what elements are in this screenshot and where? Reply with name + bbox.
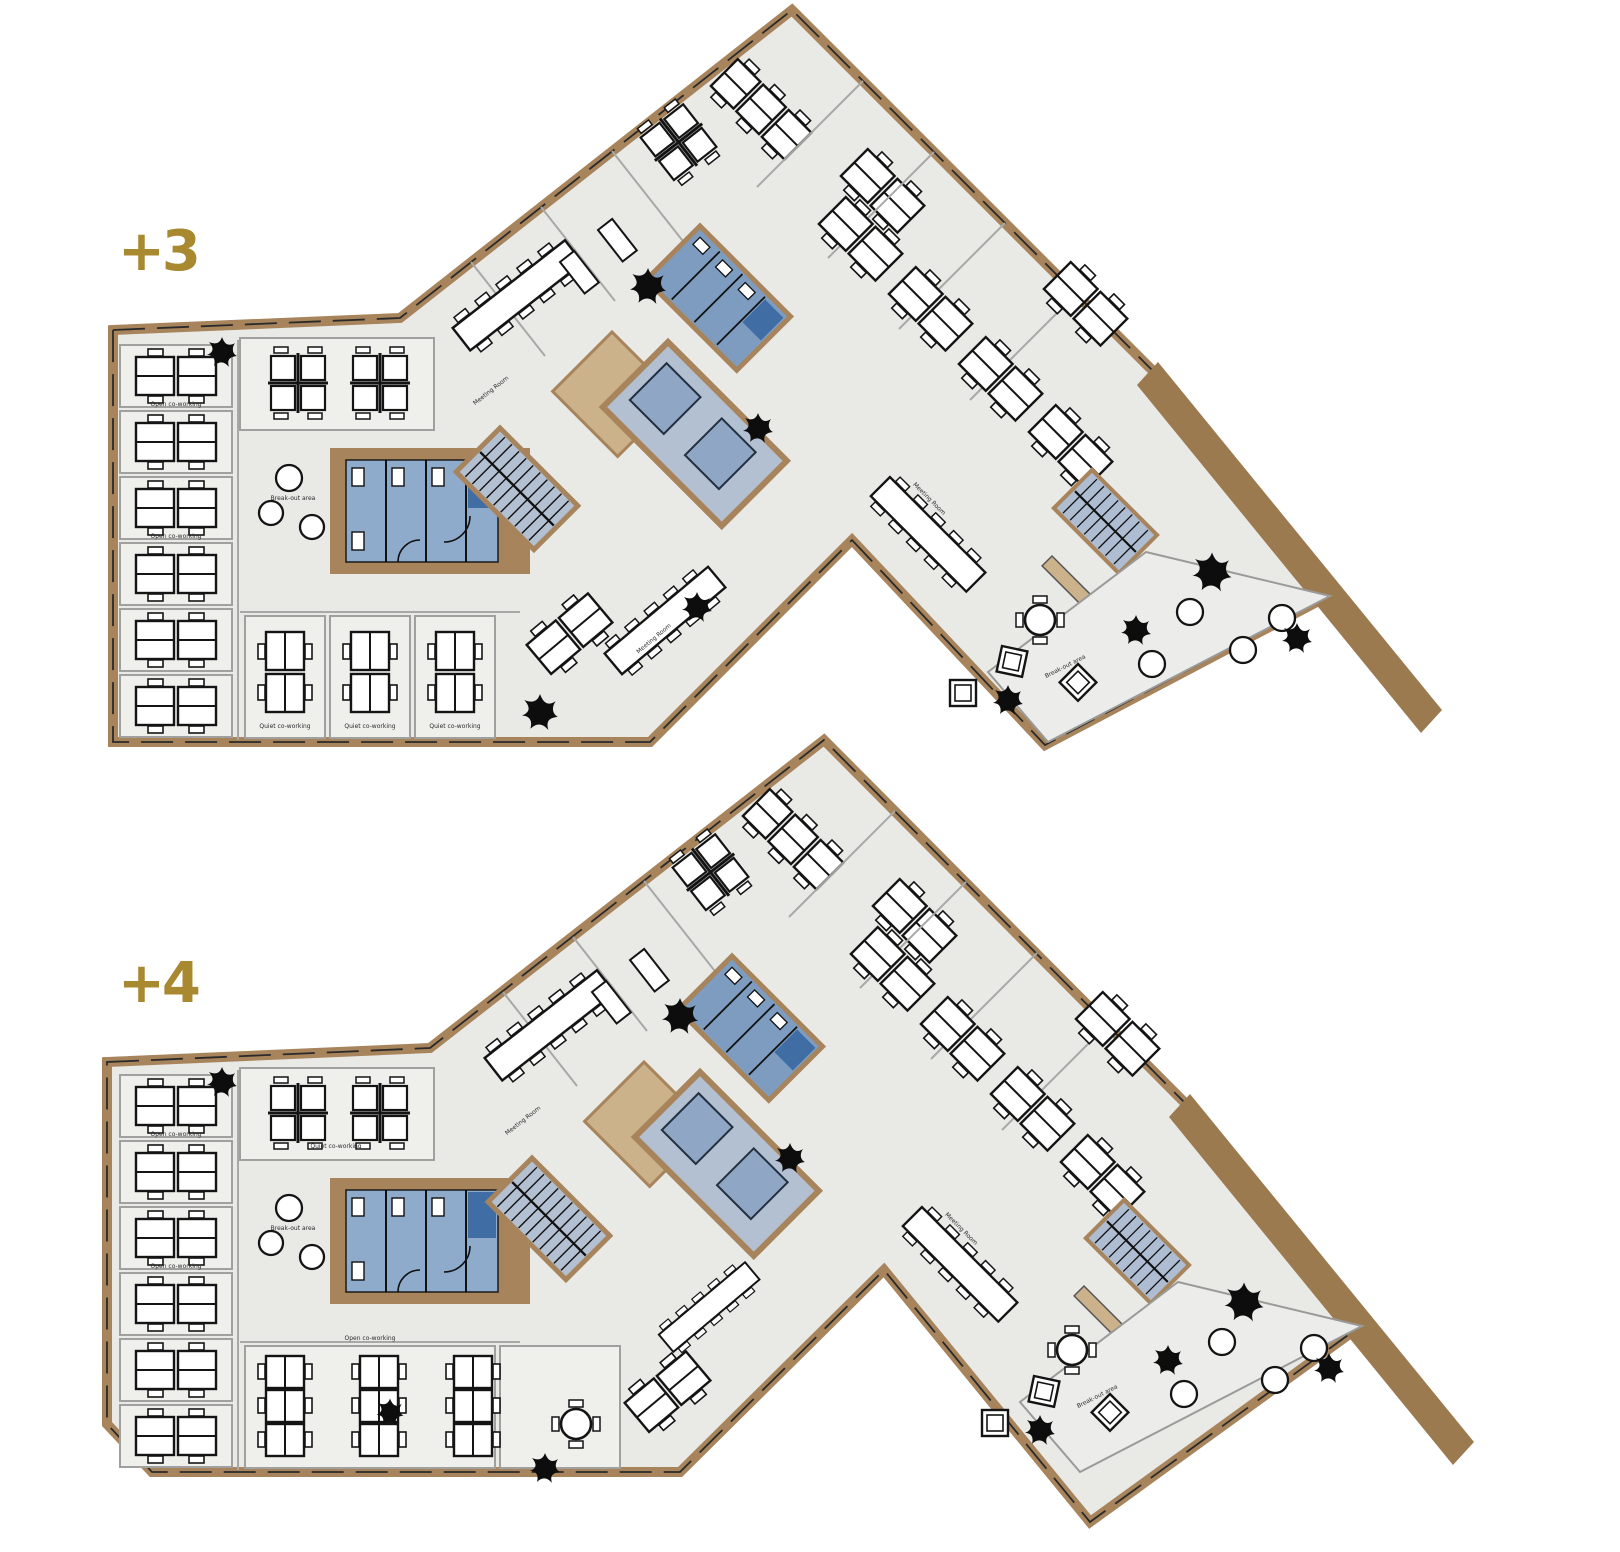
floor-label-plus4: +4 xyxy=(118,951,199,1016)
floor-plans-page: Open co-working Open co-working Break-ou… xyxy=(0,0,1620,1552)
floor-plus4: Open co-working Quiet co-working +4 xyxy=(107,740,1474,1522)
room-label-open-coworking: Open co-working xyxy=(345,1335,396,1342)
room-label-quiet: Quiet co-working xyxy=(259,723,310,730)
room-label-quiet: Quiet co-working xyxy=(310,1143,361,1150)
floor-plans-canvas: Open co-working Open co-working Break-ou… xyxy=(0,0,1620,1552)
room-label-quiet: Quiet co-working xyxy=(344,723,395,730)
floor-label-plus3: +3 xyxy=(118,219,198,284)
room-label-quiet: Quiet co-working xyxy=(429,723,480,730)
floor-plus3: Quiet co-working Quiet co-working Quiet … xyxy=(113,10,1442,745)
